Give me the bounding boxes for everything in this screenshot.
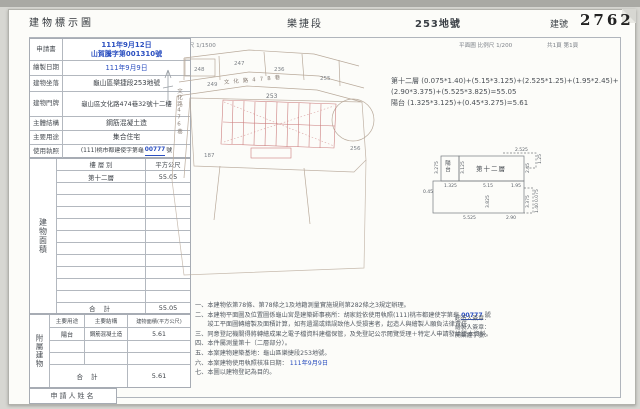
application-docno: 山賀騰字第001310號 <box>91 50 162 59</box>
application-date: 111年9月12日 <box>101 41 151 50</box>
lot-label: 256 <box>350 146 361 152</box>
attached-table: 附屬建物 主要用途 主要結構 建物面積(平方公尺) 陽台 鋼筋混凝土造 5.61… <box>29 314 191 388</box>
attached-header-row: 主要用途 主要結構 建物面積(平方公尺) <box>50 315 190 328</box>
applicant-box: 申請人姓名 <box>29 388 117 404</box>
dim-label: 5.15 <box>483 183 493 189</box>
dim-label: 0.45 <box>423 189 433 195</box>
col-floor: 樓 層 別 <box>57 159 146 170</box>
drafter-signature-label: 繪製人簽章： <box>455 324 490 333</box>
attached-total: 5.61 <box>128 365 190 387</box>
total-label: 合 計 <box>57 303 146 313</box>
subject-lot-label: 253 <box>266 93 278 100</box>
dim-label: 5.525 <box>463 215 476 221</box>
formula-line-1: 第十二層 (0.075*1.40)+(5.15*3.125)+(2.525*1.… <box>391 76 637 87</box>
floor-plan-balcony-label: 陽台 <box>443 160 451 178</box>
road-left-label: 文化路476巷 <box>175 88 183 150</box>
info-label: 繪製日期 <box>30 61 63 75</box>
info-label: 申請書 <box>30 39 63 60</box>
dim-label: 0.075 <box>534 189 540 202</box>
dim-label: 1.325 <box>444 183 457 189</box>
info-label: 主要用途 <box>30 131 63 144</box>
info-label: 主體結構 <box>30 117 63 130</box>
scan-edge <box>0 0 640 7</box>
note-2-text: 二、本建物平面圖及位置圖係龜山宮是建築師事務所：胡家銓依使用執照(111)桃市都… <box>195 312 459 319</box>
note-6-text: 六、本案建物使用執照核准日期： <box>195 360 288 367</box>
lot-label: 236 <box>274 67 285 73</box>
page-count: 共1頁 第1頁 <box>547 41 578 49</box>
col-area: 建物面積(平方公尺) <box>128 315 190 327</box>
total-area: 55.05 <box>146 303 190 313</box>
lot-label: 249 <box>207 82 218 88</box>
parcel-boundaries <box>172 50 374 275</box>
attached-structure: 鋼筋混凝土造 <box>85 328 128 340</box>
floor-plan-scale: 平面圖 比例尺 1/200 <box>459 41 512 49</box>
scanned-document: 建物標示圖 樂捷段 253地號 建號 2762 位置圖 比例尺 1/1500 平… <box>0 0 640 409</box>
land-lot-number: 253地號 <box>415 15 461 30</box>
building-footprint <box>221 100 336 158</box>
land-section: 樂捷段 <box>287 15 323 30</box>
note-item-7: 七、本圖以建物登記為目的。 <box>195 368 595 378</box>
builder-signature-label: 起造人簽章： <box>455 315 490 324</box>
dim-label: 1.25 <box>537 154 543 164</box>
building-no-value: 2762 <box>580 11 634 29</box>
signature-labels: 起造人簽章： 繪製人簽章： 開業證字號： <box>455 315 490 341</box>
dim-label: 3.275 <box>434 161 440 174</box>
lot-label: 247 <box>234 61 245 67</box>
dim-label: 1.40 <box>534 203 540 213</box>
dim-label: 3.825 <box>485 195 491 208</box>
note-item-2: 二、本建物平面圖及位置圖係龜山宮是建築師事務所：胡家銓依使用執照(111)桃市都… <box>195 311 595 321</box>
dim-label: 3.125 <box>460 161 466 174</box>
info-label: 建物門牌 <box>30 92 63 116</box>
dim-label: 3.375 <box>525 195 531 208</box>
note-item-3: 三、同意登記機關得將轉繪成果之電子檔資料建檔保管，及免登記公示閱覽受理＋特定人申… <box>195 330 595 340</box>
note-item-6: 六、本案建物使用執照核准日期： 111年9月9日 <box>195 359 595 369</box>
note-item-4: 四、本件屬測量第十（二層部分）。 <box>195 339 595 349</box>
lot-label: 187 <box>204 153 215 159</box>
formula-line-2: (2.90*3.375)+(5.525*3.825)=55.05 <box>391 87 637 98</box>
lot-label: 255 <box>320 76 331 82</box>
form-sheet: 建物標示圖 樂捷段 253地號 建號 2762 位置圖 比例尺 1/1500 平… <box>8 9 636 405</box>
floor-plan-sketch: 2.525 1.25 3.275 3.125 2.45 1.325 5.15 1… <box>421 146 561 251</box>
area-vertical-label: 建物面積 <box>30 159 57 313</box>
empty-row <box>50 353 190 365</box>
site-location-map: 248 247 249 236 255 253 256 187 文化路478巷 <box>154 40 394 302</box>
dim-label: 2.90 <box>506 215 516 221</box>
area-total-row: 合 計 55.05 <box>57 303 190 313</box>
col-structure: 主要結構 <box>85 315 128 327</box>
floor-name: 第十二層 <box>57 171 146 182</box>
north-arrow-icon <box>163 70 173 106</box>
floor-plan-room-label: 第十二層 <box>476 164 506 173</box>
note-6-date: 111年9月9日 <box>290 360 328 367</box>
info-label: 建物坐落 <box>30 76 63 91</box>
empty-row <box>50 341 190 353</box>
lot-label: 248 <box>194 67 205 73</box>
note-item-1: 一、本建物依第78條、第78條之1及地籍測量實施規則第282條之3規定辦理。 <box>195 301 595 311</box>
notes-block: 一、本建物依第78條、第78條之1及地籍測量實施規則第282條之3規定辦理。 二… <box>195 301 595 378</box>
info-label: 使用執照 <box>30 145 63 158</box>
attached-data-row: 陽台 鋼筋混凝土造 5.61 <box>50 328 190 341</box>
applicant-label: 申請人姓名 <box>51 391 96 401</box>
attached-use: 陽台 <box>50 328 85 340</box>
attached-vertical-label: 附屬建物 <box>30 315 50 387</box>
dim-label: 2.45 <box>525 163 531 173</box>
note-item-2b: 竣工平面圖轉繪製及面積計算，如有遺漏或錯誤致他人受損害者，起造人與繪製人願負法律… <box>195 320 595 330</box>
col-use: 主要用途 <box>50 315 85 327</box>
formula-block: 第十二層 (0.075*1.40)+(5.15*3.125)+(2.525*1.… <box>391 76 637 109</box>
license-cert-label: 開業證字號： <box>455 332 490 341</box>
total-label: 合 計 <box>50 365 128 387</box>
dim-label: 2.525 <box>515 147 528 153</box>
note-item-5: 五、本案建物建築基地：龜山區樂捷段253地號。 <box>195 349 595 359</box>
license-pre: (111)桃市都建使字第龜 <box>81 148 144 155</box>
page-title: 建物標示圖 <box>29 14 94 29</box>
attached-area: 5.61 <box>128 328 190 340</box>
dim-label: 1.95 <box>511 183 521 189</box>
attached-total-row: 合 計 5.61 <box>50 365 190 387</box>
road-top-label: 文化路478巷 <box>223 73 284 86</box>
building-no-label: 建號 <box>550 17 568 30</box>
formula-line-3: 陽台 (1.325*3.125)+(0.45*3.275)=5.61 <box>391 98 637 109</box>
